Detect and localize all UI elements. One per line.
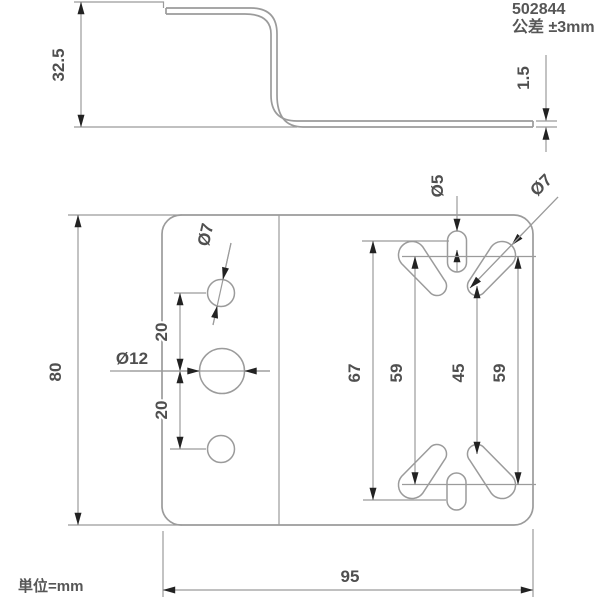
side-profile-outer bbox=[166, 8, 533, 127]
callout-slot-width: Ø5 bbox=[428, 175, 457, 272]
keyhole-slot-bottom-right bbox=[467, 444, 515, 498]
lower-round-hole bbox=[208, 436, 235, 463]
dim-slot-span-left-label: 59 bbox=[387, 364, 406, 383]
callout-upper-hole-label: Ø7 bbox=[194, 222, 218, 248]
vertical-slot-bottom bbox=[447, 473, 466, 510]
dim-bracket-height-label: 32.5 bbox=[49, 48, 68, 81]
unit-note: 単位=mm bbox=[18, 577, 83, 595]
part-number: 502844 bbox=[512, 1, 565, 18]
upper-round-hole bbox=[208, 280, 235, 307]
dim-plate-height-label: 80 bbox=[46, 363, 65, 382]
callout-keyhole: Ø7 bbox=[470, 170, 558, 288]
dim-hole-spacing-lower-label: 20 bbox=[152, 401, 171, 420]
dim-hole-spacing-upper-label: 20 bbox=[152, 323, 171, 342]
dim-slot-spans: 67 59 45 59 bbox=[345, 241, 536, 500]
callout-keyhole-label: Ø7 bbox=[526, 170, 555, 199]
callout-upper-hole: Ø7 bbox=[194, 222, 231, 325]
plan-view: 80 95 20 20 Ø7 Ø12 bbox=[18, 170, 558, 597]
callout-center-hole: Ø12 bbox=[110, 349, 270, 371]
bracket-drawing: 32.5 1.5 502844 公差 ±3mm 8 bbox=[0, 0, 600, 600]
dim-plate-width-label: 95 bbox=[341, 567, 360, 586]
dim-plate-thickness: 1.5 bbox=[514, 55, 557, 152]
dim-bracket-height: 32.5 bbox=[49, 2, 297, 127]
dim-slot-span-right-label: 59 bbox=[490, 364, 509, 383]
keyhole-slot-bottom-left bbox=[398, 444, 446, 498]
dim-slot-outer-span-label: 67 bbox=[345, 364, 364, 383]
side-profile-endcaps bbox=[166, 8, 533, 127]
dim-plate-thickness-label: 1.5 bbox=[514, 66, 533, 90]
keyhole-slot-top-left bbox=[398, 241, 446, 295]
callout-slot-width-label: Ø5 bbox=[428, 175, 447, 198]
side-profile-inner bbox=[166, 14, 533, 121]
technical-drawing-canvas: 32.5 1.5 502844 公差 ±3mm 8 bbox=[0, 0, 600, 600]
callout-center-hole-label: Ø12 bbox=[116, 349, 148, 368]
dim-slot-small-span-label: 45 bbox=[449, 364, 468, 383]
dim-plate-width: 95 bbox=[163, 529, 533, 597]
side-view: 32.5 1.5 502844 公差 ±3mm bbox=[49, 1, 595, 152]
tolerance-note: 公差 ±3mm bbox=[512, 17, 595, 36]
keyhole-slot-top-right bbox=[467, 241, 515, 295]
